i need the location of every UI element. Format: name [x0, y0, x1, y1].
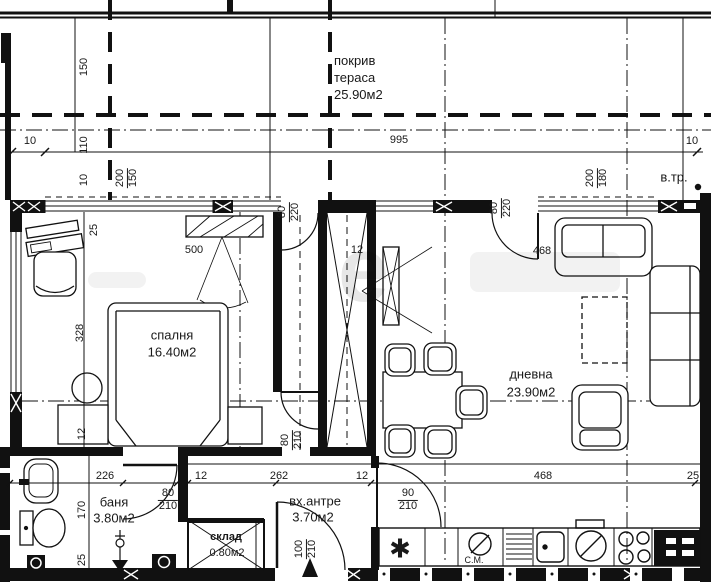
- bed: [108, 303, 228, 446]
- dim-axis-200-180: 200180: [585, 168, 609, 188]
- entry-area: 3.70м2: [292, 510, 333, 525]
- dim-12-shaft: 12: [351, 244, 363, 256]
- watermark-blur-left: [88, 272, 146, 288]
- vtr-marker: [692, 181, 704, 193]
- stove: [654, 530, 700, 566]
- living-window-2: [538, 201, 658, 211]
- bedroom-window: [45, 200, 213, 213]
- storage-label: склад: [210, 531, 242, 543]
- dim-25-bottom: 25: [687, 470, 699, 482]
- chair: [34, 252, 76, 296]
- sink: [19, 459, 58, 503]
- dim-door-bath: 80210: [158, 488, 178, 512]
- living-window-1: [376, 201, 433, 211]
- dim-door-living-terrace: 80220: [489, 198, 513, 218]
- entrance-marker: [302, 558, 318, 577]
- label-vtr: в.тр.: [660, 170, 687, 185]
- bedroom-window-2: [233, 201, 281, 211]
- desk: [24, 220, 84, 256]
- sink-basin: [537, 532, 564, 562]
- dim-226: 226: [96, 470, 114, 482]
- storage-closet: [188, 520, 264, 570]
- dim-500: 500: [185, 244, 203, 256]
- dim-995: 995: [390, 134, 408, 146]
- bedroom-label: спалня: [151, 328, 194, 343]
- kitchen: [379, 520, 700, 566]
- label-asterisk: ✱: [389, 534, 411, 565]
- dim-25-bath: 25: [76, 554, 88, 566]
- dim-door-hall: 90210: [398, 488, 418, 512]
- bedroom-area: 16.40м2: [148, 345, 197, 360]
- dim-150: 150: [78, 58, 90, 76]
- hob: [619, 532, 650, 564]
- dim-12-left: 12: [76, 428, 88, 440]
- wardrobe: [186, 216, 263, 308]
- sink-drainboard: [506, 534, 532, 559]
- bath-label: баня: [100, 495, 129, 510]
- nightstand-right: [228, 407, 262, 444]
- watermark: е: [338, 218, 389, 323]
- living-label: дневна: [509, 367, 552, 382]
- dining-table: [383, 372, 462, 428]
- fridge: [576, 531, 606, 561]
- dim-10-left: 10: [24, 135, 36, 147]
- coffee-table: [582, 297, 627, 363]
- dim-468-top: 468: [533, 245, 551, 257]
- dim-door-bedroom: 80210: [280, 430, 304, 450]
- floor-plan: е покрив тераса 25.90м2 150 110 10 995 1…: [0, 0, 711, 585]
- storage-area: 0.80м2: [209, 547, 244, 559]
- dim-110: 110: [78, 136, 90, 154]
- label-cm: С.М.: [465, 555, 484, 565]
- toilet: [20, 509, 65, 547]
- entry-label: вх.антре: [289, 494, 341, 509]
- watermark-blur-right: [470, 252, 620, 292]
- dim-468-bottom: 468: [534, 470, 552, 482]
- dim-10-axis: 10: [78, 174, 90, 186]
- dim-262: 262: [270, 470, 288, 482]
- dim-12-a: 12: [195, 470, 207, 482]
- dim-328: 328: [74, 324, 86, 342]
- bedroom-side-window: [11, 232, 21, 392]
- dim-door-entry: 100210: [294, 539, 318, 559]
- shower-symbol: [112, 530, 128, 572]
- bath-area: 3.80м2: [93, 511, 134, 526]
- washing-machine: [469, 533, 491, 555]
- armchair: [572, 385, 628, 450]
- bedroom-furniture: [24, 216, 263, 446]
- dim-axis-200-150: 200150: [115, 168, 139, 188]
- stool: [72, 373, 102, 403]
- corner-sofa: [650, 266, 700, 406]
- terrace-label: покрив тераса 25.90м2: [334, 52, 383, 103]
- living-area: 23.90м2: [507, 385, 556, 400]
- dim-12-b: 12: [356, 470, 368, 482]
- dim-10-right: 10: [686, 135, 698, 147]
- dim-door-corridor-terrace: 80220: [277, 202, 301, 222]
- dim-25-bedroom: 25: [88, 224, 100, 236]
- dim-170: 170: [76, 501, 88, 519]
